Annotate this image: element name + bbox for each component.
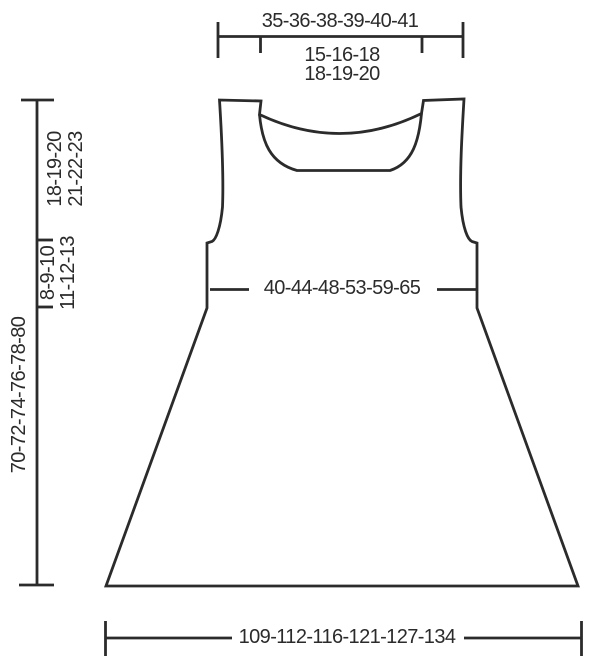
- neck-width-label-row1: 15-16-18: [304, 45, 379, 65]
- neck-width-label-row2: 18-19-20: [304, 64, 379, 84]
- armhole-section-label-row2: 11-12-13: [58, 236, 78, 310]
- front-neckline-curve: [260, 114, 422, 171]
- yoke-depth-label-row2: 21-22-23: [66, 131, 86, 206]
- hem-width-label: 109-112-116-121-127-134: [239, 627, 456, 647]
- dress-outline: [106, 99, 578, 586]
- bust-width-label: 40-44-48-53-59-65: [264, 278, 421, 298]
- pattern-diagram: 35-36-38-39-40-41 15-16-18 18-19-20 40-4…: [0, 0, 600, 669]
- yoke-depth-label-row1: 18-19-20: [45, 131, 65, 206]
- top-width-label: 35-36-38-39-40-41: [262, 11, 419, 31]
- schematic-drawing: [0, 0, 600, 669]
- total-length-label: 70-72-74-76-78-80: [9, 317, 29, 474]
- armhole-section-label-row1: 8-9-10: [38, 246, 58, 300]
